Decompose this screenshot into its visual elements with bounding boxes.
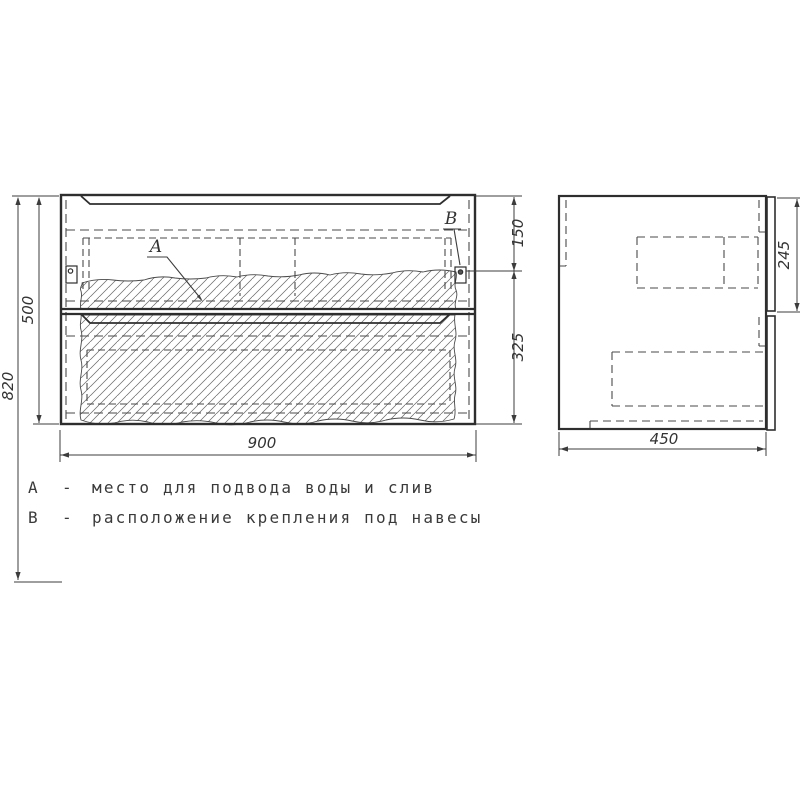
side-drawer-front-top xyxy=(767,197,775,311)
dim-text-500: 500 xyxy=(19,296,37,325)
dim-carcass-height-500: 500 xyxy=(19,197,59,424)
side-outline xyxy=(559,196,766,429)
cabinet-drawing: 820 500 900 150 xyxy=(0,0,800,800)
legend-a-dash: - xyxy=(62,478,92,497)
hanger-bracket-left xyxy=(66,266,77,283)
legend-a-key: A xyxy=(28,478,62,497)
side-hidden-lines xyxy=(559,200,766,429)
legend-row-a: A - место для подвода воды и слив xyxy=(28,478,482,497)
dim-text-325: 325 xyxy=(509,333,527,362)
side-view xyxy=(559,196,775,430)
technical-drawing-page: 820 500 900 150 xyxy=(0,0,800,800)
dim-text-900: 900 xyxy=(248,434,277,452)
dim-bracket-325: 325 xyxy=(476,271,527,424)
callout-b: B xyxy=(443,209,461,265)
top-drawer-handle-recess xyxy=(81,196,450,204)
side-drawer-front-bottom xyxy=(767,316,775,430)
legend-b-text: расположение крепления под навесы xyxy=(92,508,482,527)
dim-width-900: 900 xyxy=(60,430,476,462)
callout-a-label: A xyxy=(148,237,162,257)
legend: A - место для подвода воды и слив B - ра… xyxy=(28,478,482,538)
dim-depth-450: 450 xyxy=(559,430,766,456)
dim-text-150: 150 xyxy=(509,219,527,248)
front-view xyxy=(61,195,475,425)
legend-row-b: B - расположение крепления под навесы xyxy=(28,508,482,527)
dim-text-450: 450 xyxy=(650,430,679,448)
legend-a-text: место для подвода воды и слив xyxy=(92,478,435,497)
dim-text-245: 245 xyxy=(775,241,793,270)
callout-b-label: B xyxy=(444,209,458,229)
drawer-divider xyxy=(61,309,475,314)
dim-text-820: 820 xyxy=(0,372,17,401)
hatch-area-bottom-drawer xyxy=(80,315,456,425)
legend-b-dash: - xyxy=(62,508,92,527)
legend-b-key: B xyxy=(28,508,62,527)
hatch-area-top-drawer xyxy=(80,270,456,309)
dim-side-245: 245 xyxy=(775,198,800,312)
